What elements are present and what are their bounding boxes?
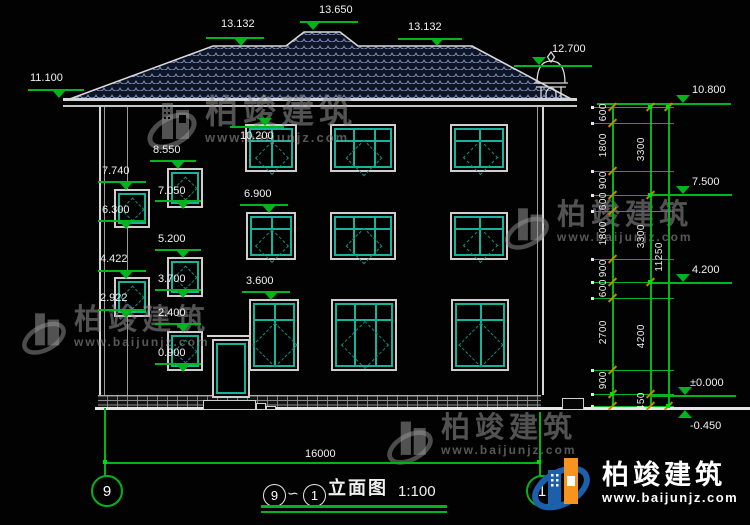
title-underline-thin [261, 511, 447, 513]
watermark-brand: 柏竣建筑 [441, 413, 577, 443]
watermark-url: www.baijunjz.com [205, 130, 357, 145]
door-step-1 [256, 403, 266, 410]
drawing-title: 立面图 [328, 482, 388, 494]
dim-label: 11250 [654, 242, 665, 272]
elevation-label: 7.740 [102, 165, 130, 177]
elevation-label: 13.650 [319, 4, 353, 16]
watermark-building-icon [503, 200, 551, 254]
elevation-label: 8.550 [153, 144, 181, 156]
elevation-label: 6.900 [244, 188, 272, 200]
dim-label: 600 [598, 103, 609, 121]
brand-logo-url: www.baijunjz.com [602, 490, 738, 505]
window-2f-left [246, 212, 296, 260]
watermark-brand: 柏竣建筑 [557, 200, 693, 230]
elevation-label: 2.400 [158, 307, 186, 319]
elevation-label: 11.100 [30, 72, 63, 84]
elevation-label: 3.600 [246, 275, 274, 287]
dim-label: 600 [598, 279, 609, 297]
window-2f-middle [330, 212, 396, 260]
dim-chain-line-2 [650, 107, 652, 407]
dim-label: 900 [598, 259, 609, 277]
elevation-label: ±0.000 [690, 377, 724, 389]
elevation-label: 6.300 [102, 204, 130, 216]
elevation-label: 13.132 [408, 21, 442, 33]
entry-door-leaf [216, 343, 246, 394]
door-platform [203, 400, 256, 410]
watermark-url: www.baijunjz.com [557, 230, 693, 244]
brand-logo: 柏竣建筑 www.baijunjz.com [528, 450, 738, 516]
dim-label: 900 [598, 171, 609, 189]
width-dim-label: 16000 [305, 448, 336, 460]
door-lintel [207, 335, 254, 337]
dim-label: 2700 [598, 320, 609, 344]
brand-logo-icon [528, 450, 594, 516]
brand-logo-name: 柏竣建筑 [602, 461, 738, 491]
title-axis-end: 1 [303, 484, 326, 507]
watermark-brand: 柏竣建筑 [205, 95, 357, 130]
dim-label: 900 [598, 371, 609, 389]
axis-bubble-left: 9 [91, 475, 123, 507]
dim-label: 1800 [598, 133, 609, 157]
window-1f-right [451, 299, 509, 371]
elevation-label: 13.132 [221, 18, 255, 30]
dim-label: 3300 [636, 224, 647, 248]
elevation-label: 12.700 [552, 43, 586, 55]
watermark-building-icon [385, 413, 435, 469]
width-dim-line [105, 462, 540, 464]
window-3f-right [450, 124, 508, 172]
window-2f-right [450, 212, 508, 260]
elevation-label: -0.450 [690, 420, 721, 432]
elevation-label: 7.500 [692, 176, 720, 188]
door-step-2 [266, 406, 276, 410]
title-underline-thick [261, 505, 447, 508]
dim-chain-line-3 [668, 107, 670, 407]
window-1f-middle [331, 299, 397, 371]
window-1f-left [249, 299, 299, 371]
elevation-drawing-canvas: 柏竣建筑 www.baijunjz.com 柏竣建筑 www.baijunjz.… [0, 0, 750, 525]
dim-label: 4200 [636, 324, 647, 348]
ground-line [95, 407, 750, 410]
axis-line-left [104, 408, 106, 476]
elevation-label: 7.050 [158, 185, 186, 197]
elevation-label: 2.922 [100, 292, 128, 304]
drawing-scale: 1:100 [398, 486, 436, 498]
elevation-label: 4.422 [100, 253, 128, 265]
title-axis-start: 9 [263, 484, 286, 507]
watermark-url: www.baijunjz.com [74, 335, 210, 349]
elevation-label: 4.200 [692, 264, 720, 276]
dim-label: 600 [598, 192, 609, 210]
elevation-label: 10.800 [692, 84, 726, 96]
elevation-label: 10.200 [240, 130, 274, 142]
dim-label: 450 [636, 392, 647, 410]
dim-label: 3300 [636, 137, 647, 161]
dim-label: 1800 [598, 221, 609, 245]
watermark-building-icon [20, 305, 68, 359]
title-tilde: ∽ [287, 487, 299, 499]
elevation-label: 5.200 [158, 233, 186, 245]
side-step-block [562, 398, 584, 410]
elevation-label: 3.700 [158, 273, 186, 285]
entry-door [212, 339, 250, 398]
elevation-label: 0.900 [158, 347, 186, 359]
